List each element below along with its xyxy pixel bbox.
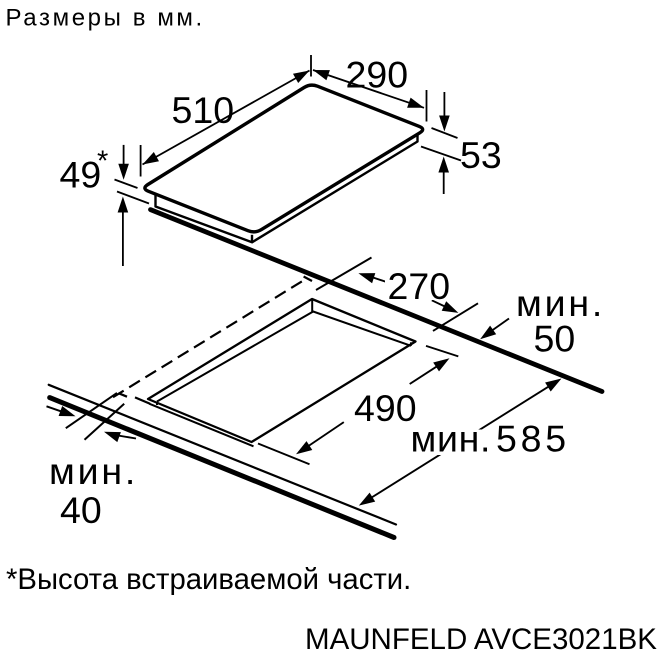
svg-text:510: 510 bbox=[172, 89, 235, 131]
svg-text:40: 40 bbox=[60, 489, 102, 531]
svg-text:270: 270 bbox=[388, 265, 451, 307]
svg-text:290: 290 bbox=[346, 54, 409, 96]
svg-text:Размеры в мм.: Размеры в мм. bbox=[6, 5, 205, 32]
svg-text:50: 50 bbox=[534, 318, 576, 360]
svg-text:585: 585 bbox=[496, 418, 570, 460]
svg-text:490: 490 bbox=[354, 387, 417, 429]
svg-text:мин.: мин. bbox=[411, 418, 492, 460]
svg-text:MAUNFELD AVCE3021BK: MAUNFELD AVCE3021BK bbox=[305, 623, 657, 656]
svg-text:мин.: мин. bbox=[49, 450, 138, 492]
svg-text:49: 49 bbox=[60, 154, 102, 196]
svg-text:*: * bbox=[97, 146, 108, 178]
svg-text:53: 53 bbox=[460, 134, 502, 176]
svg-text:*Высота встраиваемой части.: *Высота встраиваемой части. bbox=[6, 563, 411, 596]
